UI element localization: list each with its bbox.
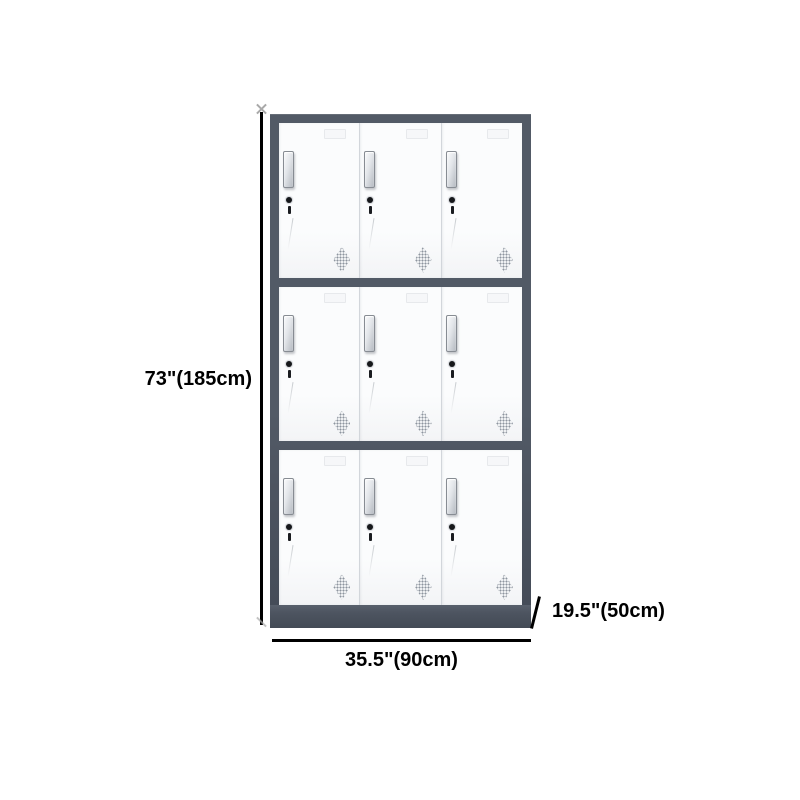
key-shadow bbox=[450, 218, 456, 250]
keyhole-icon bbox=[286, 361, 292, 367]
key-slot-icon bbox=[288, 206, 291, 214]
keyhole-icon bbox=[286, 197, 292, 203]
door-grid bbox=[279, 123, 522, 605]
door-handle-icon bbox=[446, 315, 457, 352]
keyhole-icon bbox=[449, 361, 455, 367]
locker-door bbox=[279, 287, 359, 442]
key-shadow bbox=[288, 382, 294, 414]
locker-door bbox=[279, 123, 359, 278]
vent-diamond-icon bbox=[496, 574, 513, 600]
vent-diamond-icon bbox=[333, 247, 350, 273]
vent-diamond-icon bbox=[415, 410, 432, 436]
key-slot-icon bbox=[288, 370, 291, 378]
height-dimension-line bbox=[260, 112, 263, 625]
height-dimension-label: 73"(185cm) bbox=[112, 368, 252, 391]
card-label-slot bbox=[406, 129, 428, 139]
door-handle-icon bbox=[283, 478, 294, 515]
vent-diamond-icon bbox=[415, 247, 432, 273]
door-handle-icon bbox=[364, 478, 375, 515]
locker-door bbox=[360, 123, 440, 278]
keyhole-icon bbox=[286, 524, 292, 530]
depth-dimension-label: 19.5"(50cm) bbox=[552, 600, 665, 623]
keyhole-icon bbox=[367, 197, 373, 203]
vent-diamond-icon bbox=[333, 410, 350, 436]
key-slot-icon bbox=[369, 533, 372, 541]
locker-door bbox=[360, 450, 440, 605]
card-label-slot bbox=[487, 293, 509, 303]
key-slot-icon bbox=[451, 206, 454, 214]
key-shadow bbox=[369, 218, 375, 250]
card-label-slot bbox=[487, 456, 509, 466]
card-label-slot bbox=[324, 129, 346, 139]
keyhole-icon bbox=[367, 361, 373, 367]
locker-door bbox=[279, 450, 359, 605]
width-dimension-label: 35.5"(90cm) bbox=[272, 649, 531, 672]
key-slot-icon bbox=[288, 533, 291, 541]
door-handle-icon bbox=[283, 315, 294, 352]
card-label-slot bbox=[406, 456, 428, 466]
key-slot-icon bbox=[451, 370, 454, 378]
locker-door bbox=[442, 450, 522, 605]
door-row bbox=[279, 287, 522, 442]
door-handle-icon bbox=[446, 478, 457, 515]
key-shadow bbox=[288, 218, 294, 250]
key-slot-icon bbox=[369, 206, 372, 214]
width-dimension-line bbox=[272, 639, 531, 642]
locker-door bbox=[442, 123, 522, 278]
depth-dimension-line bbox=[530, 596, 541, 629]
vent-diamond-icon bbox=[333, 574, 350, 600]
door-handle-icon bbox=[364, 151, 375, 188]
card-label-slot bbox=[406, 293, 428, 303]
vent-diamond-icon bbox=[415, 574, 432, 600]
product-diagram-canvas: 73"(185cm) 35.5"(90cm) 19.5"(50cm) bbox=[0, 0, 800, 800]
door-handle-icon bbox=[283, 151, 294, 188]
vent-diamond-icon bbox=[496, 247, 513, 273]
key-shadow bbox=[369, 382, 375, 414]
card-label-slot bbox=[487, 129, 509, 139]
keyhole-icon bbox=[449, 197, 455, 203]
key-shadow bbox=[369, 545, 375, 577]
locker-door bbox=[442, 287, 522, 442]
door-handle-icon bbox=[364, 315, 375, 352]
key-shadow bbox=[288, 545, 294, 577]
cabinet-base bbox=[270, 605, 531, 628]
keyhole-icon bbox=[367, 524, 373, 530]
key-slot-icon bbox=[369, 370, 372, 378]
keyhole-icon bbox=[449, 524, 455, 530]
key-slot-icon bbox=[451, 533, 454, 541]
door-row bbox=[279, 450, 522, 605]
vent-diamond-icon bbox=[496, 410, 513, 436]
card-label-slot bbox=[324, 293, 346, 303]
key-shadow bbox=[450, 545, 456, 577]
locker-cabinet bbox=[270, 114, 531, 605]
key-shadow bbox=[450, 382, 456, 414]
door-handle-icon bbox=[446, 151, 457, 188]
card-label-slot bbox=[324, 456, 346, 466]
locker-door bbox=[360, 287, 440, 442]
door-row bbox=[279, 123, 522, 278]
